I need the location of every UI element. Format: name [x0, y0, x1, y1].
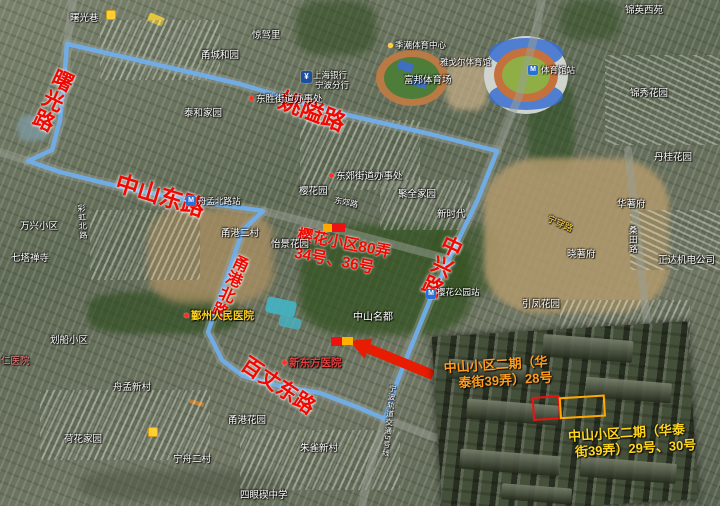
map-label: 正达机电公司 — [658, 256, 715, 266]
map-label: 宁舟二村 — [173, 455, 211, 465]
inset-rect-orange — [559, 395, 606, 420]
map-label: 朱雀新村 — [300, 444, 338, 454]
map-label: 晓著府 — [567, 250, 596, 260]
map-label: 万兴小区 — [20, 222, 58, 232]
map-label: 鄞州人民医院 — [184, 311, 254, 322]
highlight-rect — [331, 337, 342, 346]
inset-image: 中山小区二期（华 泰街39弄）28号 中山小区二期（华泰 街39弄）29号、30… — [432, 321, 698, 506]
inset-caption-orange: 中山小区二期（华 泰街39弄）28号 — [443, 354, 553, 393]
map-label: 四眼碶中学 — [240, 491, 288, 501]
inset-building — [501, 483, 572, 504]
map-label: 聚全家园 — [398, 190, 436, 200]
map-label: 雅戈尔体育馆 — [440, 58, 491, 67]
map-label: 划船小区 — [50, 336, 88, 346]
metro-station-icon: M — [528, 65, 538, 75]
map-label: 仁医院 — [1, 357, 30, 367]
map-label: 富邦体育场 — [404, 76, 452, 86]
map-label: 甬城和园 — [201, 51, 239, 61]
poi-dot-icon — [249, 96, 254, 101]
metro-station-icon: M — [426, 289, 436, 299]
map-label: 新东方医院 — [282, 358, 342, 369]
map-label: 宁波分行 — [315, 81, 349, 90]
map-label: 曙光巷 — [70, 14, 99, 24]
map-label: 季潮体育中心 — [388, 41, 446, 50]
map-label: 中山名都 — [353, 313, 393, 323]
poi-dot-icon — [388, 43, 393, 48]
map-label: 七塔禅寺 — [11, 254, 49, 264]
metro-station-icon: M — [186, 196, 196, 206]
inset-building — [459, 449, 560, 477]
highlight-rect — [323, 224, 332, 232]
inset-rect-red — [532, 395, 561, 421]
map-label: 体育馆站 — [541, 66, 575, 75]
map-label: 引凤花园 — [522, 300, 560, 310]
map-label: 泰和家园 — [184, 109, 222, 119]
map-label: 甬港二村 — [221, 229, 259, 239]
map-label: 惊驾里 — [252, 31, 281, 41]
inset-building — [542, 334, 633, 363]
map-label: 丹桂花园 — [654, 153, 692, 163]
map-label: 彩虹北路 — [77, 204, 87, 240]
map-label: 樱花公园站 — [437, 288, 480, 297]
map-label: 东胜街道办事处 — [249, 95, 323, 105]
map-label: 荷花家园 — [64, 435, 102, 445]
map-label: 东郊街道办事处 — [329, 172, 403, 182]
map-label: 樱花园 — [299, 187, 328, 197]
inset-building — [580, 456, 677, 483]
bank-icon: ¥ — [301, 71, 312, 83]
map-label: 锦秀花园 — [630, 89, 668, 99]
poi-icon — [106, 10, 116, 20]
map-label: 舟孟北路站 — [198, 197, 241, 206]
poi-dot-icon — [184, 313, 189, 318]
map-label: 华著府 — [617, 200, 646, 210]
inset-caption-yellow: 中山小区二期（华泰 街39弄）29号、30号 — [568, 421, 697, 461]
highlight-rect — [342, 337, 353, 345]
map-label: 舟孟新村 — [113, 383, 151, 393]
poi-icon — [148, 427, 158, 437]
map-label: 桑田路 — [629, 226, 638, 255]
poi-dot-icon — [329, 173, 334, 178]
poi-dot-icon — [282, 360, 287, 365]
map-label: 锦英西苑 — [625, 6, 663, 16]
map-label: 新时代 — [437, 210, 466, 220]
satellite-map[interactable]: 曙光路中山东路姚隘路中兴路甬港北路百丈东路樱花小区80弄34号、36号曙光巷甬城… — [0, 0, 720, 506]
highlight-rect — [332, 223, 345, 232]
map-label: 甬港花园 — [228, 416, 266, 426]
map-label: 怡景花园 — [271, 240, 309, 250]
map-label: 上海银行 — [313, 71, 347, 80]
